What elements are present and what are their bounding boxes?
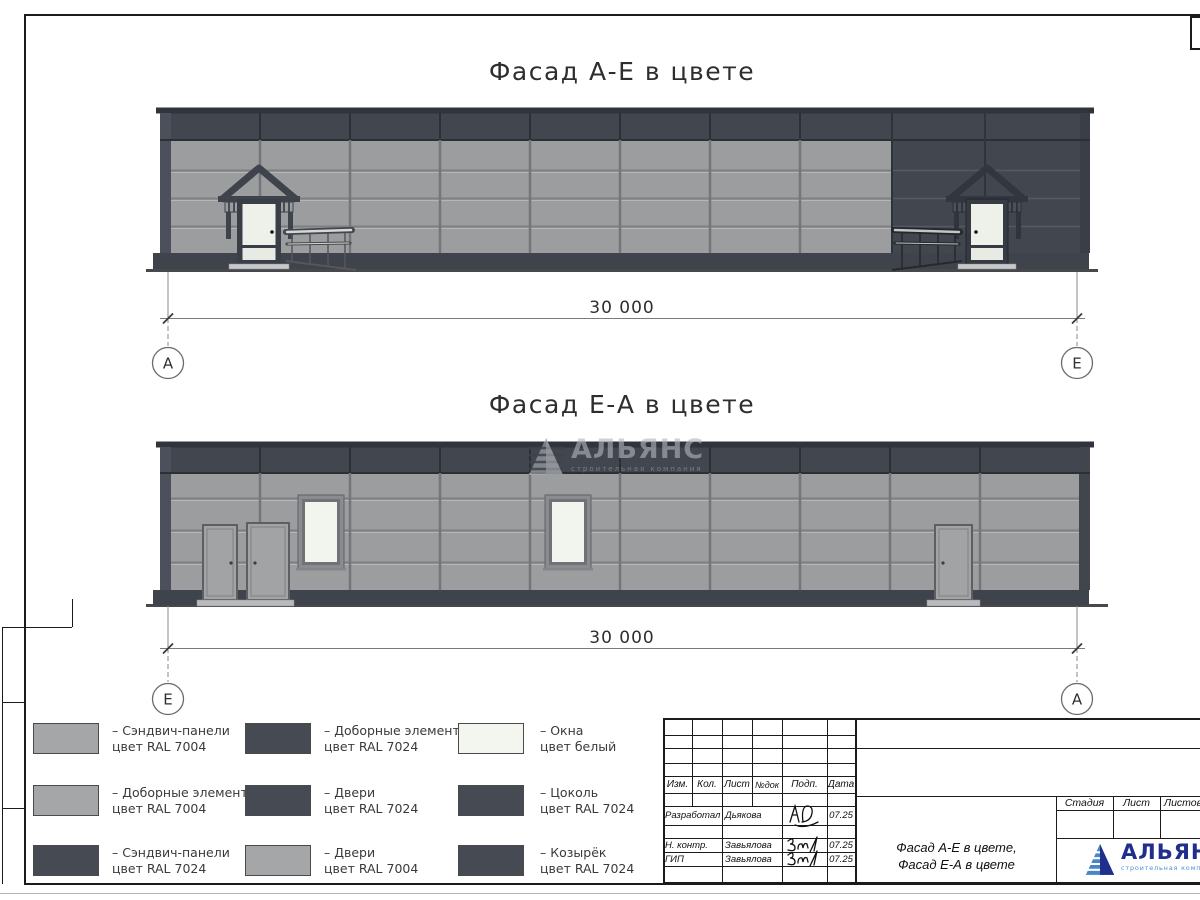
legend-swatch xyxy=(245,785,311,816)
dimension-facade-a-e: 30 000 А Е xyxy=(140,272,1090,390)
legend-label: – Доборные элементыцвет RAL 7024 xyxy=(324,723,470,754)
facade-e-a-title: Фасад Е-А в цвете xyxy=(342,390,902,419)
legend-label: – Дверицвет RAL 7024 xyxy=(324,785,418,816)
stamp-col-podp: Подп. xyxy=(782,776,827,793)
service-door xyxy=(935,525,972,600)
legend-swatch xyxy=(245,723,311,754)
legend-label: – Сэндвич-панелицвет RAL 7004 xyxy=(112,723,230,754)
facade-a-e-drawing xyxy=(140,100,1100,296)
stamp-col-ndok: №док xyxy=(752,776,782,793)
frame-top xyxy=(24,14,1200,16)
facade-a-e-title: Фасад А-Е в цвете xyxy=(342,57,902,86)
dimension-value: 30 000 xyxy=(589,298,654,318)
legend-swatch xyxy=(458,785,524,816)
legend-label: – Цокольцвет RAL 7024 xyxy=(540,785,634,816)
company-logo: АЛЬЯНС строительная компания xyxy=(1085,841,1200,882)
pyramid-icon xyxy=(1085,841,1115,877)
stamp-role: Разработал xyxy=(665,806,722,825)
dimension-value: 30 000 xyxy=(589,628,654,648)
legend-label: – Доборные элементыцвет RAL 7004 xyxy=(112,785,258,816)
stamp-col-kol: Кол. xyxy=(692,776,722,793)
stamp-doc-title: Фасад А-Е в цвете, Фасад Е-А в цвете xyxy=(857,796,1056,882)
legend-label: – Козырёкцвет RAL 7024 xyxy=(540,845,634,876)
signature xyxy=(784,849,826,867)
entrance-door xyxy=(958,199,1016,269)
axis-label: Е xyxy=(163,691,172,709)
legend-swatch xyxy=(33,845,99,876)
stamp-col-data: Дата xyxy=(827,776,855,793)
watermark-subtitle: строительная компания xyxy=(571,465,704,473)
company-name: АЛЬЯНС xyxy=(1121,841,1200,863)
legend-swatch xyxy=(33,785,99,816)
stamp-date: 07.25 xyxy=(827,852,855,866)
stamp-name: Дьякова xyxy=(725,806,781,825)
stamp-col-izm: Изм. xyxy=(663,776,692,793)
entrance-door xyxy=(229,199,289,269)
corner-stamp-box xyxy=(1190,16,1200,50)
axis-label: Е xyxy=(1072,355,1081,373)
service-door xyxy=(247,523,289,600)
legend-swatch xyxy=(245,845,311,876)
pyramid-icon xyxy=(528,436,564,476)
axis-label: А xyxy=(1072,691,1083,709)
company-subtitle: строительная компания xyxy=(1121,864,1200,872)
legend-label: – Сэндвич-панелицвет RAL 7024 xyxy=(112,845,230,876)
paper-bottom-edge xyxy=(0,893,1200,894)
legend-label: – Окнацвет белый xyxy=(540,723,616,754)
legend-label: – Дверицвет RAL 7004 xyxy=(324,845,418,876)
axis-label: А xyxy=(163,355,174,373)
title-block: Изм. Кол. Лист №док Подп. Дата Разработа… xyxy=(663,718,1200,884)
stamp-col-list: Лист xyxy=(722,776,752,793)
stamp-stage: Стадия xyxy=(1056,796,1113,810)
window xyxy=(543,495,593,571)
stamp-name: Завьялова xyxy=(725,838,781,852)
legend-swatch xyxy=(458,723,524,754)
watermark-logo: АЛЬЯНС строительная компания xyxy=(528,436,718,482)
legend-swatch xyxy=(458,845,524,876)
signature xyxy=(784,802,826,828)
stamp-name: Завьялова xyxy=(725,852,781,866)
legend-swatch xyxy=(33,723,99,754)
service-door xyxy=(203,525,237,600)
stamp-role: ГИП xyxy=(665,852,722,866)
stamp-role: Н. контр. xyxy=(665,838,722,852)
stamp-sheets: Листов xyxy=(1160,796,1200,810)
stamp-date: 07.25 xyxy=(827,806,855,825)
stamp-sheet: Лист xyxy=(1113,796,1160,810)
window xyxy=(296,495,346,571)
watermark-name: АЛЬЯНС xyxy=(571,436,704,463)
dimension-facade-e-a: 30 000 Е А xyxy=(140,606,1090,724)
stamp-date: 07.25 xyxy=(827,838,855,852)
frame-left xyxy=(24,14,26,885)
